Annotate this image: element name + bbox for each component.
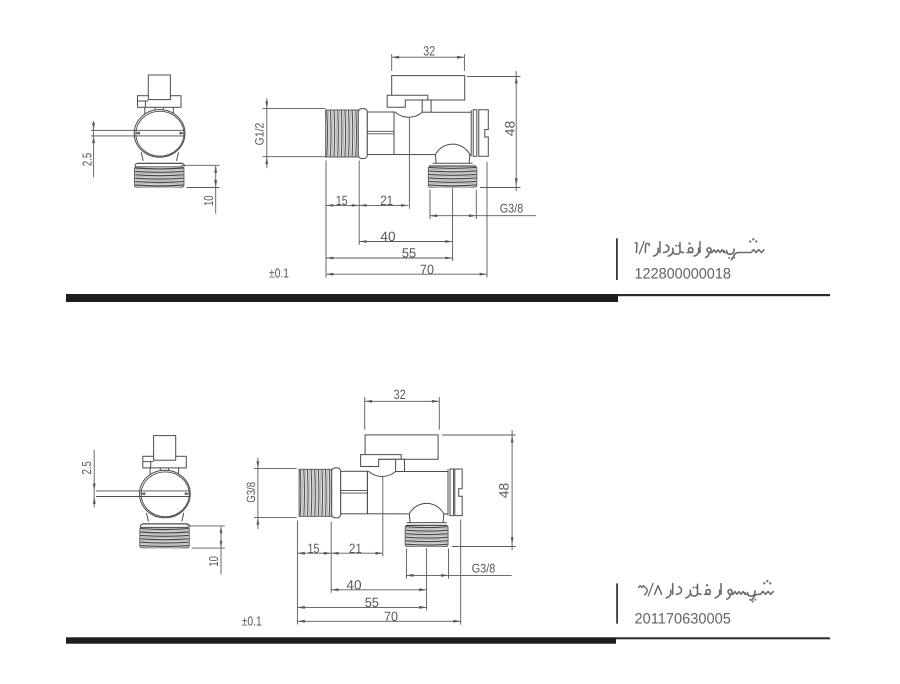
svg-text:G3/8: G3/8 <box>500 202 524 216</box>
svg-text:40: 40 <box>380 229 395 244</box>
svg-text:32: 32 <box>394 387 406 402</box>
svg-text:122800000018: 122800000018 <box>635 265 731 282</box>
svg-text:10: 10 <box>206 556 221 567</box>
svg-text:55: 55 <box>365 595 379 610</box>
svg-text:±0.1: ±0.1 <box>242 613 262 628</box>
svg-text:10: 10 <box>201 196 216 207</box>
svg-text:32: 32 <box>423 44 435 59</box>
svg-text:21: 21 <box>349 541 362 556</box>
svg-text:G3/8: G3/8 <box>472 561 496 575</box>
svg-text:15: 15 <box>308 541 320 556</box>
svg-text:48: 48 <box>503 121 518 137</box>
svg-text:70: 70 <box>420 262 434 277</box>
svg-text:15: 15 <box>336 193 348 208</box>
svg-text:40: 40 <box>346 578 361 593</box>
svg-text:48: 48 <box>497 483 512 499</box>
svg-text:±0.1: ±0.1 <box>269 266 289 281</box>
svg-text:2.5: 2.5 <box>79 153 94 166</box>
svg-text:G3/8: G3/8 <box>244 482 258 503</box>
svg-text:2.5: 2.5 <box>79 461 94 474</box>
svg-text:70: 70 <box>384 609 398 624</box>
svg-text:21: 21 <box>380 193 393 208</box>
svg-text:55: 55 <box>402 246 416 261</box>
svg-text:201170630005: 201170630005 <box>635 610 731 627</box>
svg-text:G1/2: G1/2 <box>253 122 267 145</box>
